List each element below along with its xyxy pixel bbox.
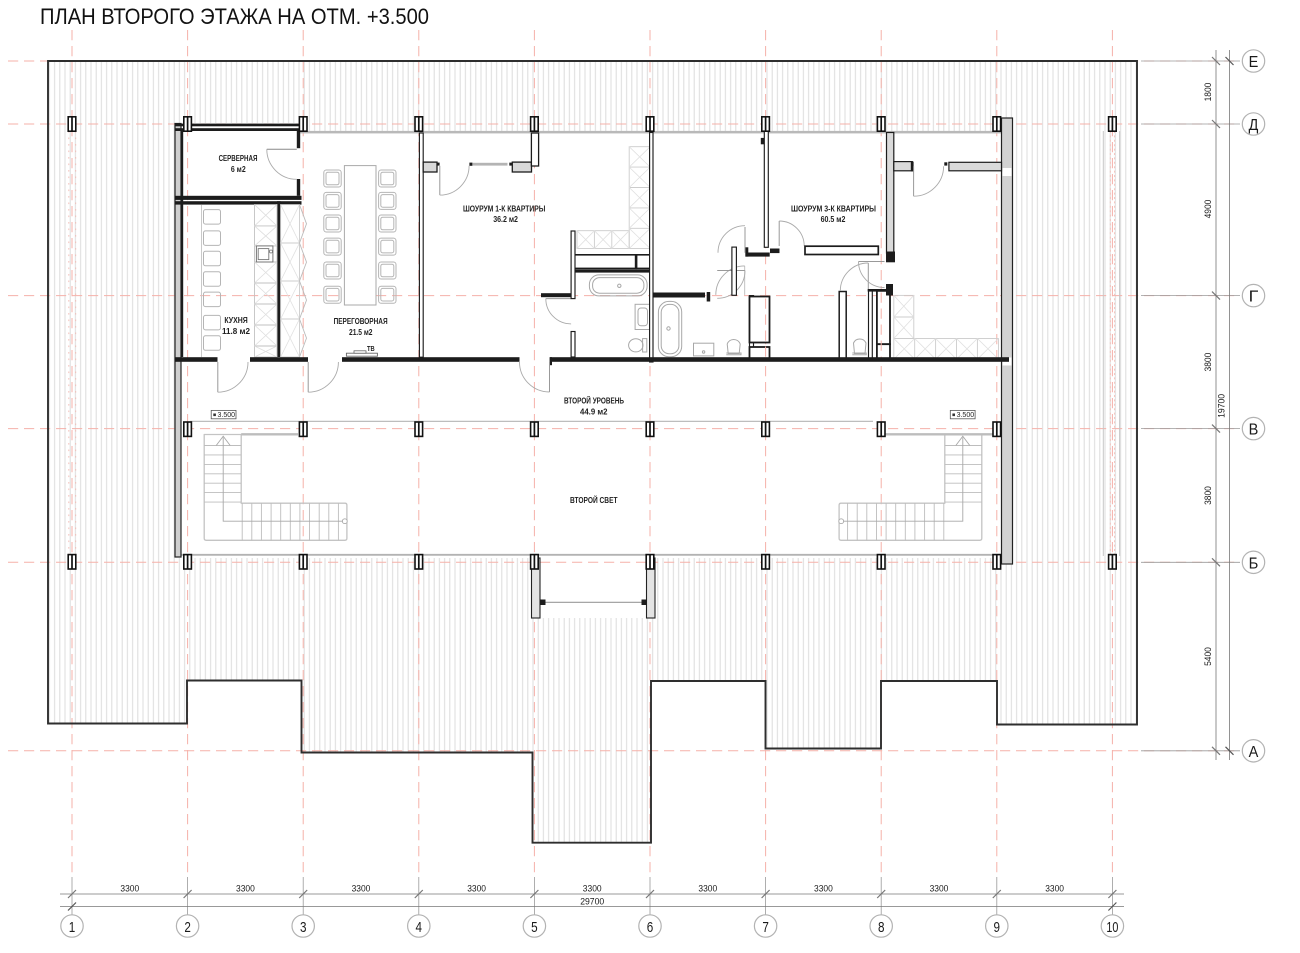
svg-text:60.5 м2: 60.5 м2 bbox=[821, 215, 846, 224]
svg-text:СЕРВЕРНАЯ: СЕРВЕРНАЯ bbox=[219, 154, 258, 163]
svg-text:3: 3 bbox=[300, 919, 307, 936]
svg-text:3800: 3800 bbox=[1203, 353, 1213, 372]
svg-text:8: 8 bbox=[878, 919, 885, 936]
svg-text:ПЛАН ВТОРОГО ЭТАЖА НА ОТМ. +3.: ПЛАН ВТОРОГО ЭТАЖА НА ОТМ. +3.500 bbox=[40, 4, 429, 29]
svg-text:44.9 м2: 44.9 м2 bbox=[580, 408, 608, 417]
svg-text:ПЕРЕГОВОРНАЯ: ПЕРЕГОВОРНАЯ bbox=[334, 317, 388, 326]
svg-text:6: 6 bbox=[647, 919, 654, 936]
svg-text:3.500: 3.500 bbox=[218, 412, 236, 419]
svg-text:3300: 3300 bbox=[930, 884, 949, 894]
svg-text:3300: 3300 bbox=[1045, 884, 1064, 894]
svg-text:КУХНЯ: КУХНЯ bbox=[224, 316, 248, 325]
svg-text:ВТОРОЙ СВЕТ: ВТОРОЙ СВЕТ bbox=[570, 496, 618, 505]
svg-text:3300: 3300 bbox=[236, 884, 255, 894]
svg-text:9: 9 bbox=[994, 919, 1001, 936]
svg-text:3800: 3800 bbox=[1203, 486, 1213, 505]
svg-text:ВТОРОЙ УРОВЕНЬ: ВТОРОЙ УРОВЕНЬ bbox=[564, 397, 624, 406]
svg-text:1800: 1800 bbox=[1203, 83, 1213, 102]
svg-text:10: 10 bbox=[1106, 919, 1118, 936]
svg-text:29700: 29700 bbox=[580, 897, 604, 907]
svg-text:19700: 19700 bbox=[1217, 394, 1227, 418]
svg-text:7: 7 bbox=[762, 919, 769, 936]
svg-text:3300: 3300 bbox=[352, 884, 371, 894]
svg-text:2: 2 bbox=[184, 919, 191, 936]
svg-text:1: 1 bbox=[69, 919, 76, 936]
svg-text:5: 5 bbox=[531, 919, 538, 936]
svg-text:3300: 3300 bbox=[120, 884, 139, 894]
svg-text:ТВ: ТВ bbox=[367, 344, 375, 353]
svg-text:Е: Е bbox=[1249, 54, 1259, 71]
svg-text:ШОУРУМ 1-К КВАРТИРЫ: ШОУРУМ 1-К КВАРТИРЫ bbox=[463, 205, 546, 214]
svg-text:3.500: 3.500 bbox=[957, 412, 975, 419]
svg-text:4900: 4900 bbox=[1203, 200, 1213, 219]
svg-text:3300: 3300 bbox=[583, 884, 602, 894]
svg-text:3300: 3300 bbox=[698, 884, 717, 894]
svg-text:Г: Г bbox=[1249, 289, 1259, 306]
svg-text:А: А bbox=[1249, 744, 1259, 761]
svg-text:Б: Б bbox=[1249, 555, 1259, 572]
svg-text:36.2 м2: 36.2 м2 bbox=[493, 215, 518, 224]
svg-text:4: 4 bbox=[416, 919, 423, 936]
svg-text:Д: Д bbox=[1249, 117, 1259, 134]
svg-text:11.8 м2: 11.8 м2 bbox=[222, 327, 251, 336]
svg-text:3300: 3300 bbox=[467, 884, 486, 894]
svg-text:ШОУРУМ 3-К КВАРТИРЫ: ШОУРУМ 3-К КВАРТИРЫ bbox=[791, 205, 876, 214]
svg-text:21.5 м2: 21.5 м2 bbox=[349, 328, 373, 337]
svg-text:В: В bbox=[1249, 422, 1259, 439]
svg-text:5400: 5400 bbox=[1203, 647, 1213, 666]
svg-text:3300: 3300 bbox=[814, 884, 833, 894]
svg-text:6 м2: 6 м2 bbox=[231, 165, 246, 174]
